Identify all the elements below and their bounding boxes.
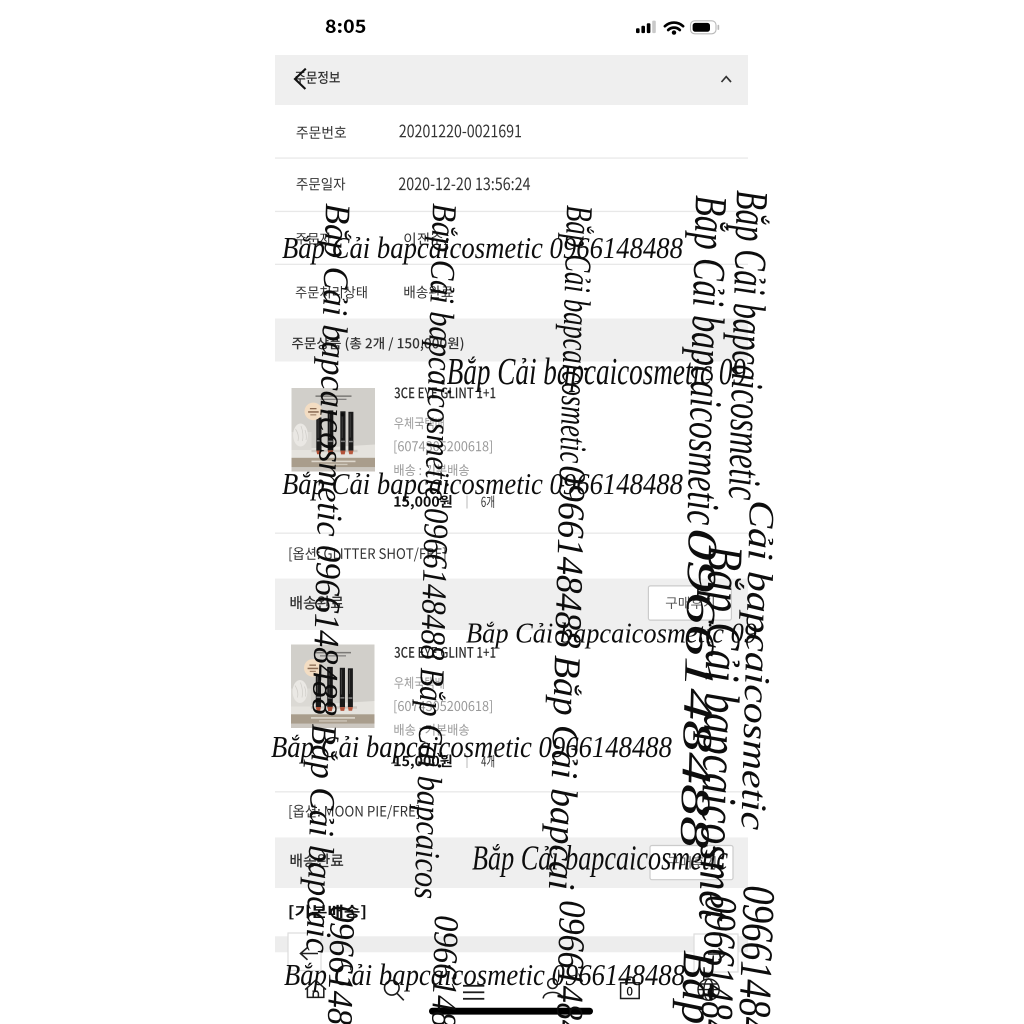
- svg-text:0966148488: 0966148488: [727, 885, 785, 1024]
- svg-text:Bắp Cải bapcai: Bắp Cải bapcai: [540, 655, 588, 891]
- svg-text:0966148488: 0966148488: [319, 905, 363, 1024]
- svg-text:0966148488: 0966148488: [546, 465, 593, 649]
- svg-text:Bắp Cải bapcaicosmetic: Bắp Cải bapcaicosmetic: [719, 190, 778, 501]
- svg-text:0966148488: 0966148488: [547, 900, 593, 1024]
- svg-text:0966148488: 0966148488: [423, 915, 466, 1024]
- svg-text:Bắp Cải bapcaicosmetic: Bắp Cải bapcaicosmetic: [551, 205, 600, 464]
